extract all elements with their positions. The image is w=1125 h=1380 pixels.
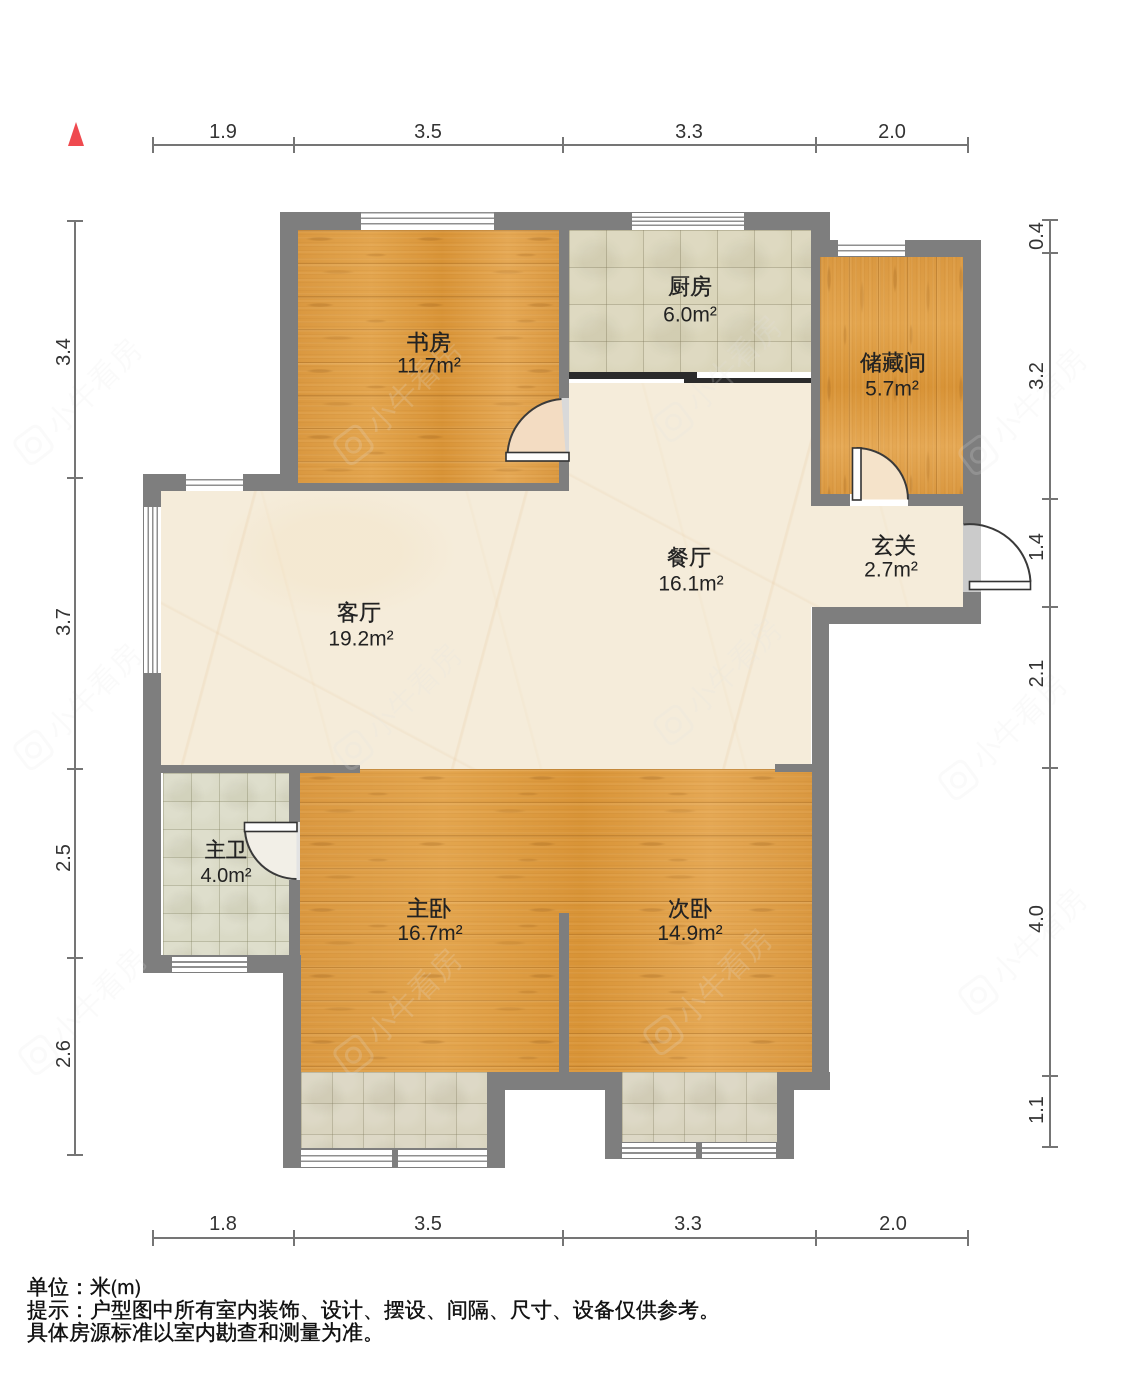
svg-text:5.7m²: 5.7m²	[865, 378, 919, 401]
svg-text:3.5: 3.5	[414, 1213, 442, 1235]
svg-text:3.4: 3.4	[53, 338, 75, 366]
svg-text:16.1m²: 16.1m²	[658, 573, 723, 596]
svg-text:1.1: 1.1	[1026, 1096, 1048, 1124]
svg-text:2.1: 2.1	[1026, 660, 1048, 688]
svg-text:1.4: 1.4	[1026, 533, 1048, 561]
svg-text:2.7m²: 2.7m²	[864, 559, 918, 582]
svg-text:2.6: 2.6	[53, 1040, 75, 1068]
svg-text:19.2m²: 19.2m²	[328, 628, 393, 651]
svg-text:3.5: 3.5	[414, 121, 442, 143]
svg-text:2.0: 2.0	[878, 121, 906, 143]
svg-text:0.4: 0.4	[1026, 222, 1048, 250]
svg-text:2.0: 2.0	[879, 1213, 907, 1235]
svg-text:11.7m²: 11.7m²	[397, 355, 461, 378]
svg-text:14.9m²: 14.9m²	[657, 922, 722, 945]
svg-text:1.9: 1.9	[209, 121, 237, 143]
svg-text:6.0m²: 6.0m²	[663, 304, 717, 327]
svg-text:3.2: 3.2	[1026, 362, 1048, 390]
svg-text:3.3: 3.3	[674, 1213, 702, 1235]
svg-text:16.7m²: 16.7m²	[397, 922, 462, 945]
svg-text:1.8: 1.8	[209, 1213, 237, 1235]
svg-text:4.0m²: 4.0m²	[200, 865, 251, 887]
svg-text:3.3: 3.3	[675, 121, 703, 143]
svg-text:2.5: 2.5	[53, 844, 75, 872]
svg-text:4.0: 4.0	[1026, 905, 1048, 933]
svg-text:3.7: 3.7	[53, 608, 75, 636]
